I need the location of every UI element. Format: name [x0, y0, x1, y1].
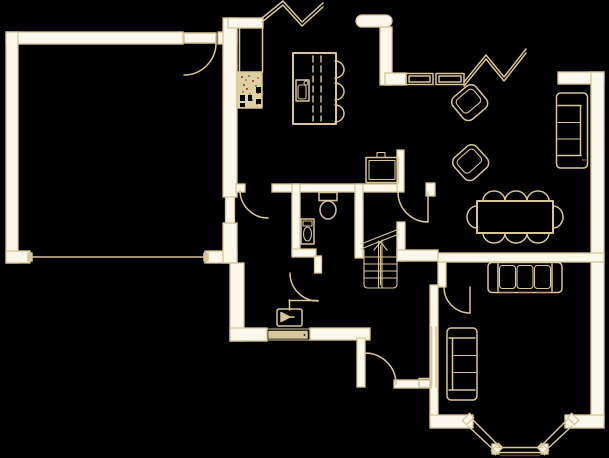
- wall-right: [591, 72, 604, 422]
- party-wall-lower: [223, 223, 237, 263]
- kitchen-wall-top: [228, 18, 263, 28]
- floor-plan-canvas: [0, 0, 609, 458]
- lounge-nw-stub: [438, 262, 446, 287]
- wc-door-stub: [315, 256, 322, 273]
- garage-side-door-leaf: [184, 33, 216, 43]
- lounge-wall-top: [438, 253, 604, 262]
- front-wall-west: [230, 328, 267, 341]
- window-wall-segment: [385, 73, 406, 85]
- garage-door-end-left: [28, 253, 32, 261]
- stairs-wall-left: [355, 184, 363, 258]
- stair-top-wall: [356, 15, 392, 27]
- garage-pier-left: [6, 251, 30, 263]
- inner-wall-vertical: [357, 338, 365, 387]
- garage-wall-left: [6, 32, 18, 263]
- party-wall-upper: [223, 18, 237, 197]
- wc-wall-left: [292, 184, 300, 256]
- hall-wall-north: [272, 184, 398, 192]
- garage-wall-top-left: [6, 32, 183, 44]
- party-wall-door: [226, 197, 235, 223]
- hall-lounge-wall: [397, 250, 438, 261]
- cooker: [237, 72, 262, 108]
- wc-wall-bottom: [292, 249, 316, 257]
- garage-door-end-right: [204, 253, 208, 261]
